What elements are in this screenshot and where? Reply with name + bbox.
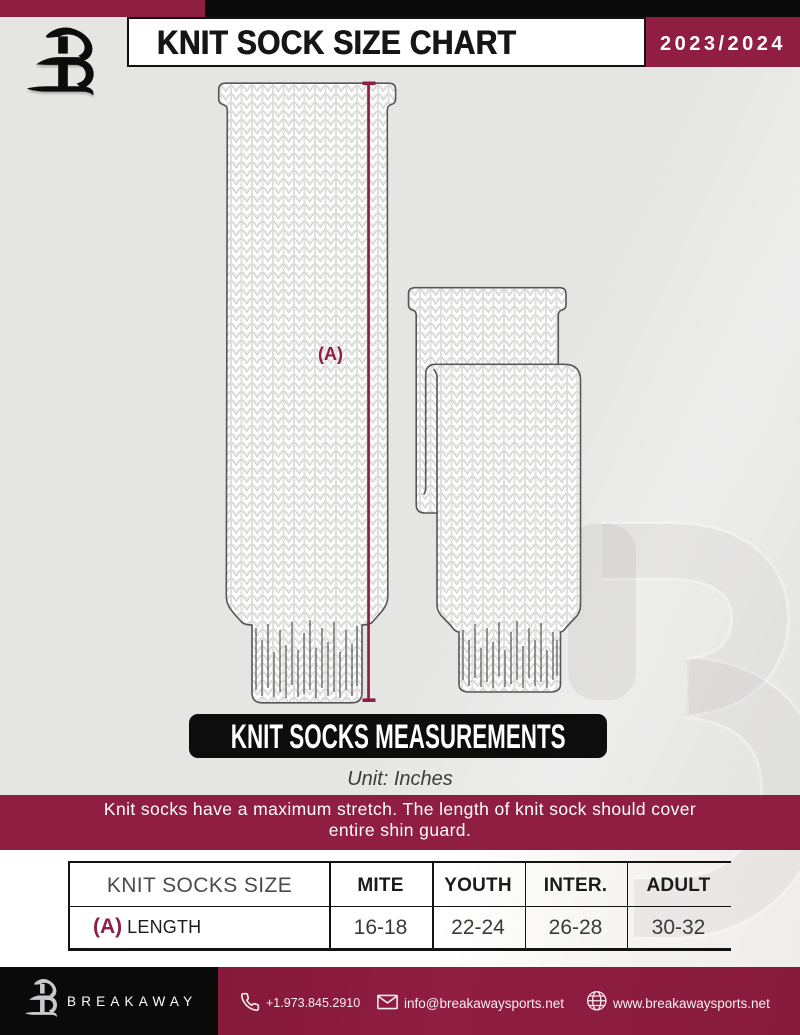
svg-text:(A): (A) [318,344,343,364]
